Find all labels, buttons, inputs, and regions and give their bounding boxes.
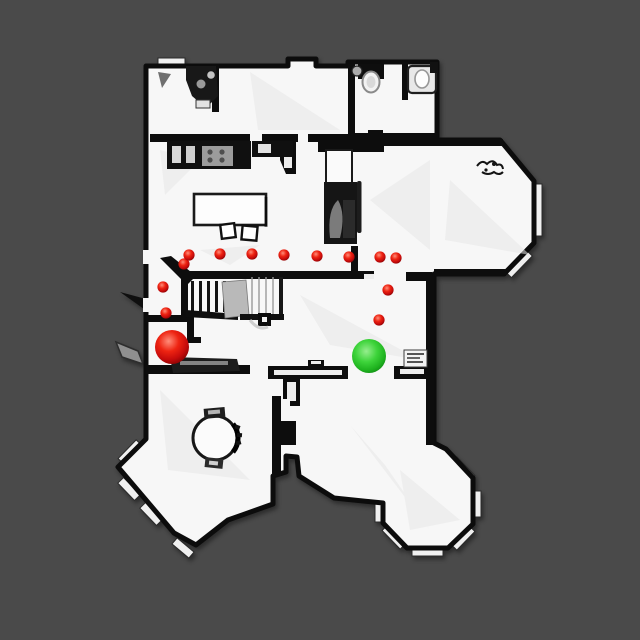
- stair-landing: [222, 280, 249, 318]
- waypoint-sphere: [183, 249, 194, 260]
- waypoint-sphere: [373, 314, 384, 325]
- chair: [241, 225, 257, 240]
- waypoint-sphere: [311, 250, 322, 261]
- scan-viewer: [0, 0, 640, 640]
- waypoint-sphere: [157, 281, 168, 292]
- stove-top: [202, 146, 233, 166]
- waypoint-sphere: [278, 249, 289, 260]
- chair: [220, 223, 236, 239]
- floorplan-canvas: [0, 0, 640, 640]
- goal-sphere: [352, 339, 386, 373]
- console-highlight: [180, 361, 228, 365]
- start-sphere: [155, 330, 189, 364]
- waypoint-sphere: [246, 248, 257, 259]
- waypoint-sphere: [382, 284, 393, 295]
- waypoint-sphere: [390, 252, 401, 263]
- wall-plaque: [404, 350, 427, 367]
- waypoint-sphere: [214, 248, 225, 259]
- waypoint-sphere: [374, 251, 385, 262]
- waypoint-sphere: [160, 307, 171, 318]
- waypoint-sphere: [343, 251, 354, 262]
- sink: [352, 66, 362, 76]
